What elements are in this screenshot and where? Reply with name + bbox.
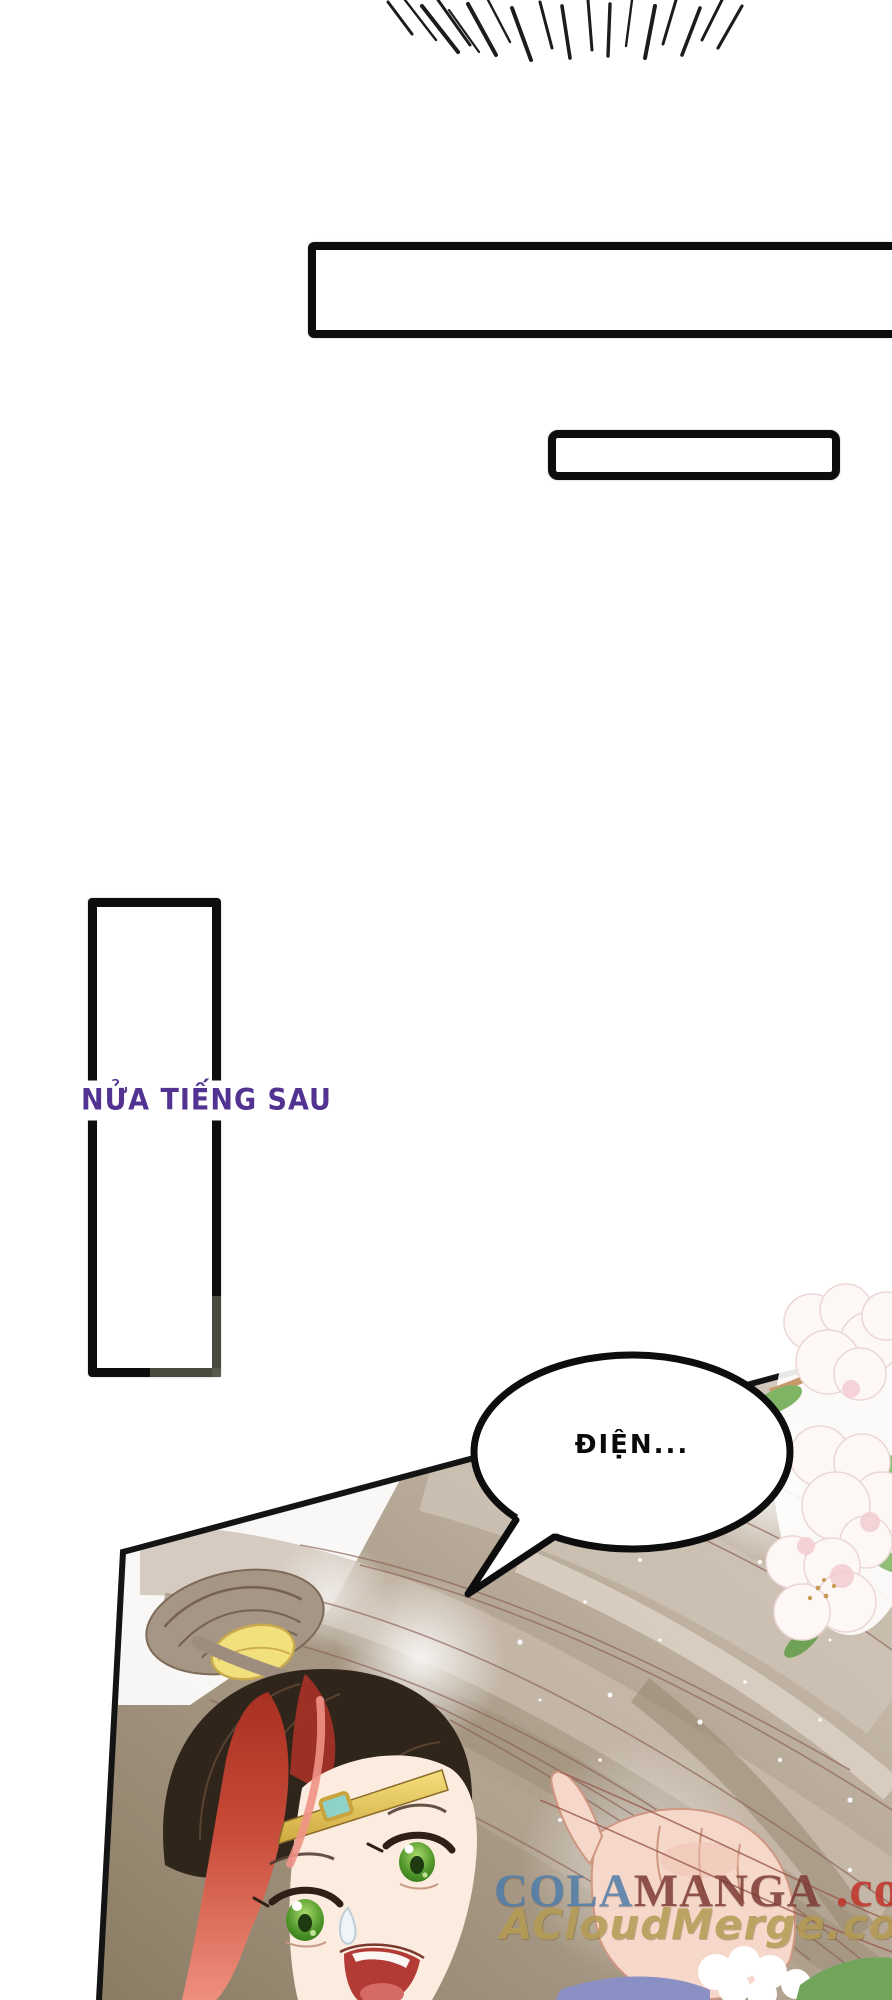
speech-bubble-text: ĐIỆN...	[482, 1430, 782, 1460]
manga-page: NỬA TIẾNG SAU ĐIỆN... COLAMANGA.com AClo…	[0, 0, 892, 2000]
watermark-acloudmerge: ACloudMerge.com	[500, 1900, 892, 1949]
vertical-box-border-tint	[150, 1368, 221, 1377]
narration-box-small	[548, 430, 840, 480]
speed-lines	[388, 0, 742, 60]
time-skip-caption: NỬA TIẾNG SAU	[74, 1081, 339, 1121]
narration-box-vertical	[88, 898, 221, 1377]
vertical-box-border-tint	[212, 1296, 221, 1377]
narration-box-wide	[308, 242, 892, 338]
